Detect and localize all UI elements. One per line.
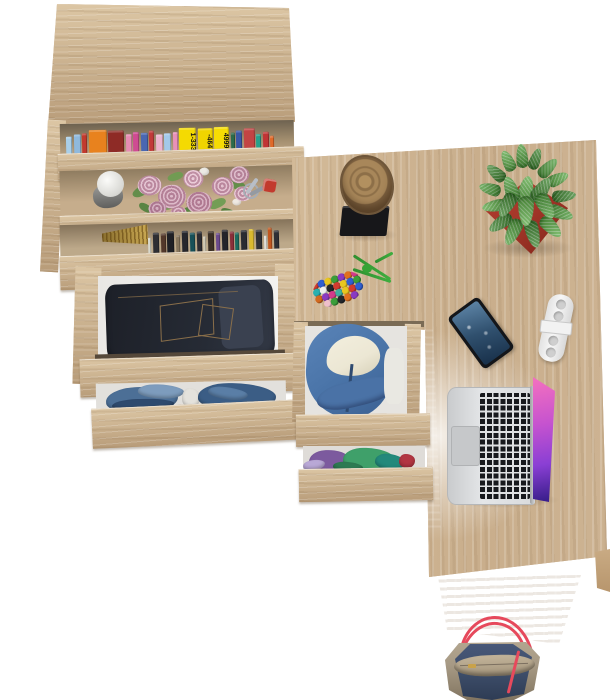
desk-right-leg (588, 548, 610, 594)
product-photo-stage: 1-333-4644999 (0, 0, 610, 700)
desk-bottom (0, 0, 610, 700)
bag-zipper-pull (468, 664, 476, 668)
